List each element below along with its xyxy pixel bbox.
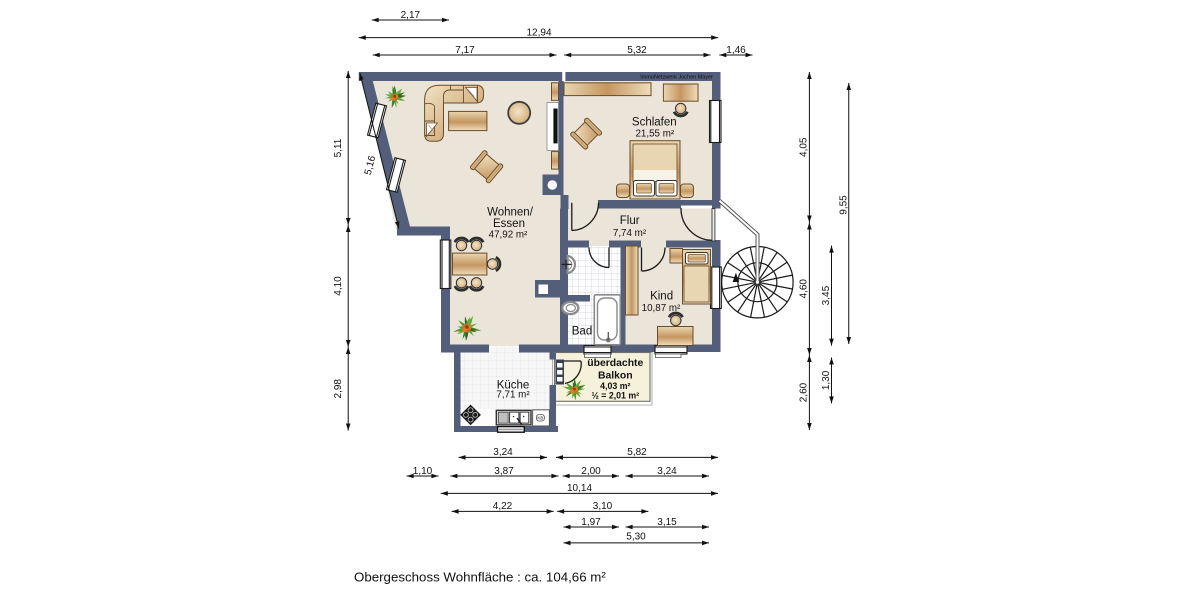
svg-text:10,14: 10,14: [567, 483, 592, 494]
svg-text:Flur: Flur: [620, 215, 640, 227]
svg-text:1,46: 1,46: [726, 45, 746, 56]
svg-text:Essen: Essen: [493, 218, 525, 230]
svg-text:12,94: 12,94: [526, 27, 551, 38]
svg-text:4,22: 4,22: [493, 501, 513, 512]
svg-text:3,10: 3,10: [593, 501, 613, 512]
svg-text:2,60: 2,60: [799, 382, 810, 402]
svg-text:3,15: 3,15: [657, 517, 677, 528]
svg-text:Bad: Bad: [572, 326, 592, 338]
svg-text:4,10: 4,10: [333, 276, 344, 296]
svg-text:5,30: 5,30: [626, 532, 646, 543]
svg-text:Wohnen/: Wohnen/: [487, 207, 534, 219]
svg-text:überdachte: überdachte: [587, 358, 643, 369]
svg-text:ImmoNetzwerk Jochen Mayer: ImmoNetzwerk Jochen Mayer: [640, 75, 713, 81]
svg-text:3,45: 3,45: [821, 285, 832, 305]
svg-text:4,60: 4,60: [799, 279, 810, 299]
svg-text:3,24: 3,24: [493, 447, 513, 458]
svg-text:Balkon: Balkon: [598, 370, 633, 381]
svg-text:5,11: 5,11: [333, 138, 344, 157]
svg-text:7,17: 7,17: [455, 45, 475, 56]
svg-text:Obergeschoss Wohnfläche : ca.: Obergeschoss Wohnfläche : ca. 104,66 m²: [354, 569, 606, 584]
svg-text:KB: KB: [537, 416, 543, 421]
svg-text:2,98: 2,98: [333, 379, 344, 399]
svg-text:5,32: 5,32: [627, 45, 647, 56]
svg-text:47,92 m²: 47,92 m²: [489, 230, 528, 241]
svg-text:3,87: 3,87: [494, 466, 514, 477]
svg-text:Kind: Kind: [650, 291, 673, 303]
svg-text:Schlafen: Schlafen: [632, 117, 677, 129]
svg-text:10,87 m²: 10,87 m²: [642, 303, 681, 314]
svg-text:1,97: 1,97: [581, 517, 601, 528]
svg-text:2,00: 2,00: [581, 466, 601, 477]
svg-text:½ = 2,01 m²: ½ = 2,01 m²: [591, 390, 639, 400]
svg-text:2,17: 2,17: [401, 10, 421, 21]
svg-text:7,71 m²: 7,71 m²: [496, 389, 530, 400]
svg-text:5,82: 5,82: [627, 447, 647, 458]
svg-text:7,74 m²: 7,74 m²: [613, 228, 647, 239]
svg-text:4,05: 4,05: [799, 137, 810, 157]
svg-text:3,24: 3,24: [657, 466, 677, 477]
svg-text:21,55 m²: 21,55 m²: [635, 128, 674, 139]
svg-text:1,30: 1,30: [821, 370, 832, 390]
svg-text:9,55: 9,55: [838, 195, 849, 215]
svg-text:1,10: 1,10: [413, 466, 433, 477]
